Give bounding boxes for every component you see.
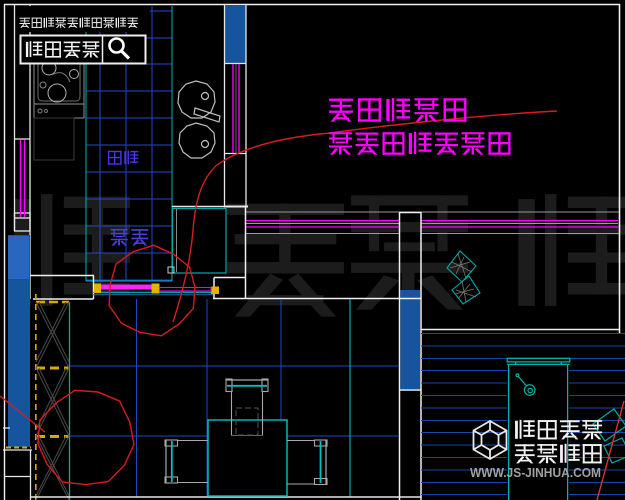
svg-text:WWW.JS-JINHUA.COM: WWW.JS-JINHUA.COM xyxy=(470,466,601,480)
